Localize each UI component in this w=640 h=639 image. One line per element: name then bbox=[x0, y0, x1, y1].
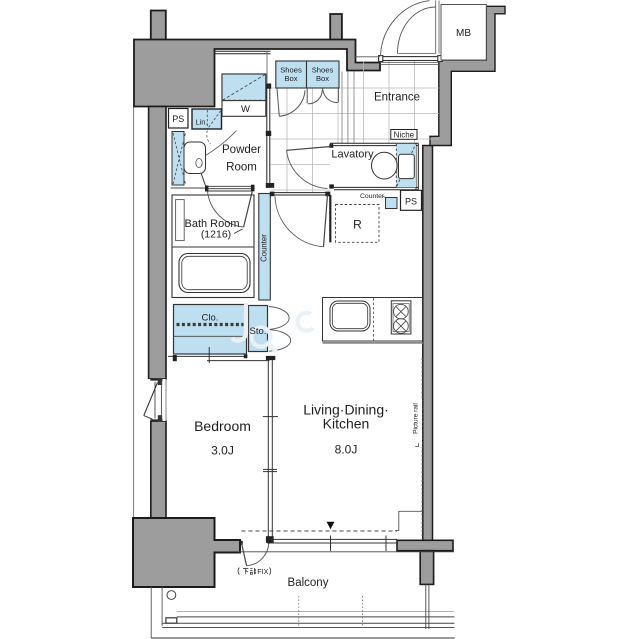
svg-text:Room: Room bbox=[226, 162, 257, 174]
svg-text:Lin.: Lin. bbox=[195, 118, 207, 127]
svg-text:MB: MB bbox=[456, 28, 471, 39]
svg-text:8.0J: 8.0J bbox=[335, 443, 358, 457]
svg-text:Counter: Counter bbox=[360, 193, 385, 200]
svg-text:Clo.: Clo. bbox=[202, 313, 219, 324]
svg-text:Kitchen: Kitchen bbox=[323, 416, 370, 432]
svg-text:Picture rail: Picture rail bbox=[413, 403, 420, 434]
svg-text:R: R bbox=[353, 218, 362, 232]
svg-text:Sto.: Sto. bbox=[250, 326, 267, 337]
svg-text:W: W bbox=[241, 104, 250, 115]
svg-text:3.0J: 3.0J bbox=[211, 444, 234, 458]
svg-text:Powder: Powder bbox=[222, 144, 261, 156]
svg-text:Counter: Counter bbox=[260, 234, 269, 262]
svg-text:PS: PS bbox=[172, 114, 184, 124]
svg-text:Entrance: Entrance bbox=[374, 92, 420, 104]
svg-text:Niche: Niche bbox=[394, 131, 415, 140]
svg-text:Lavatory: Lavatory bbox=[331, 149, 374, 161]
svg-text:(1216): (1216) bbox=[201, 229, 231, 241]
svg-text:Box: Box bbox=[284, 74, 297, 83]
svg-text:FIX: FIX bbox=[257, 567, 268, 576]
svg-text:PS: PS bbox=[405, 197, 417, 207]
svg-text:Bedroom: Bedroom bbox=[194, 418, 251, 434]
svg-text:Balcony: Balcony bbox=[288, 577, 329, 589]
svg-text:Box: Box bbox=[316, 74, 329, 83]
